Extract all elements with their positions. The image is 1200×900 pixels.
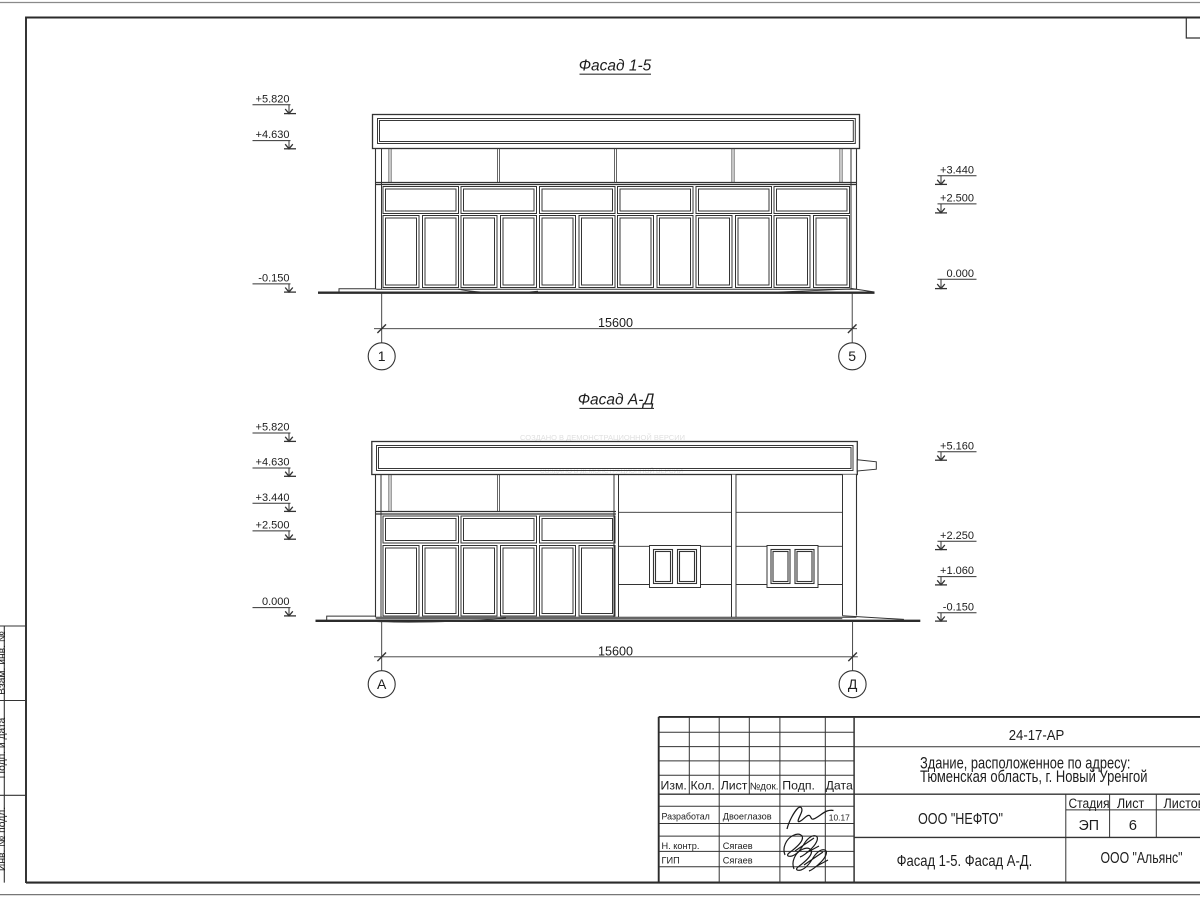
svg-text:-0.150: -0.150	[943, 601, 974, 613]
svg-text:0.000: 0.000	[262, 596, 290, 608]
svg-text:1: 1	[378, 348, 386, 364]
svg-text:СОЗДАНО В ДЕМОНСТРАЦИОННОЙ: СОЗДАНО В ДЕМОНСТРАЦИОННОЙ ВЕРСИИ	[520, 433, 685, 442]
svg-text:А: А	[377, 676, 387, 692]
svg-text:ООО "НЕФТО": ООО "НЕФТО"	[918, 811, 1003, 828]
svg-text:+5.820: +5.820	[256, 422, 290, 434]
svg-text:+1.060: +1.060	[940, 565, 974, 577]
svg-text:+5.820: +5.820	[256, 93, 290, 105]
svg-text:Н. контр.: Н. контр.	[662, 841, 700, 851]
svg-text:Подп.: Подп.	[782, 779, 815, 793]
svg-text:№док.: №док.	[750, 781, 779, 792]
svg-text:+3.440: +3.440	[940, 164, 974, 176]
svg-text:-0.150: -0.150	[258, 273, 289, 285]
svg-text:Подп. и дата: Подп. и дата	[0, 717, 8, 778]
svg-text:+4.630: +4.630	[256, 129, 290, 141]
svg-text:Лист: Лист	[1117, 796, 1145, 811]
svg-text:Дата: Дата	[826, 779, 853, 793]
svg-text:Фасад 1-5: Фасад 1-5	[579, 58, 652, 75]
svg-text:+4.630: +4.630	[256, 457, 290, 469]
svg-text:+5.160: +5.160	[940, 440, 974, 452]
svg-text:Взам. инв. №: Взам. инв. №	[0, 631, 8, 695]
svg-text:+2.500: +2.500	[256, 520, 290, 532]
svg-text:24-17-АР: 24-17-АР	[1009, 727, 1065, 744]
svg-text:0.000: 0.000	[946, 268, 974, 280]
svg-text:+2.500: +2.500	[940, 193, 974, 205]
svg-text:Сягаев: Сягаев	[723, 856, 753, 866]
svg-text:ЭП: ЭП	[1079, 818, 1100, 834]
svg-text:+3.440: +3.440	[256, 492, 290, 504]
svg-text:15600: 15600	[598, 316, 633, 330]
svg-text:ООО "Альянс": ООО "Альянс"	[1101, 850, 1183, 867]
svg-text:Листов: Листов	[1164, 796, 1200, 811]
svg-text:Тюменская область, г. Новый Ур: Тюменская область, г. Новый Уренгой	[920, 768, 1148, 786]
svg-text:Двоеглазов: Двоеглазов	[723, 811, 772, 821]
svg-text:Разработал: Разработал	[662, 811, 710, 821]
svg-text:Изм.: Изм.	[661, 779, 687, 793]
svg-text:15600: 15600	[598, 644, 633, 658]
svg-text:+2.250: +2.250	[940, 530, 974, 542]
svg-text:ГИП: ГИП	[662, 856, 680, 866]
svg-text:Лист: Лист	[721, 779, 748, 793]
svg-text:Д: Д	[848, 676, 858, 692]
svg-text:Фасад 1-5. Фасад А-Д.: Фасад 1-5. Фасад А-Д.	[897, 853, 1033, 870]
svg-text:Кол.: Кол.	[691, 779, 715, 793]
svg-text:10.17: 10.17	[829, 812, 850, 822]
svg-text:Стадия: Стадия	[1069, 796, 1110, 811]
svg-text:6: 6	[1129, 818, 1137, 834]
svg-text:5: 5	[848, 348, 856, 364]
svg-text:Фасад А-Д: Фасад А-Д	[578, 392, 655, 409]
svg-text:Сягаев: Сягаев	[723, 841, 753, 851]
svg-text:Инв. № подл.: Инв. № подл.	[0, 807, 8, 871]
